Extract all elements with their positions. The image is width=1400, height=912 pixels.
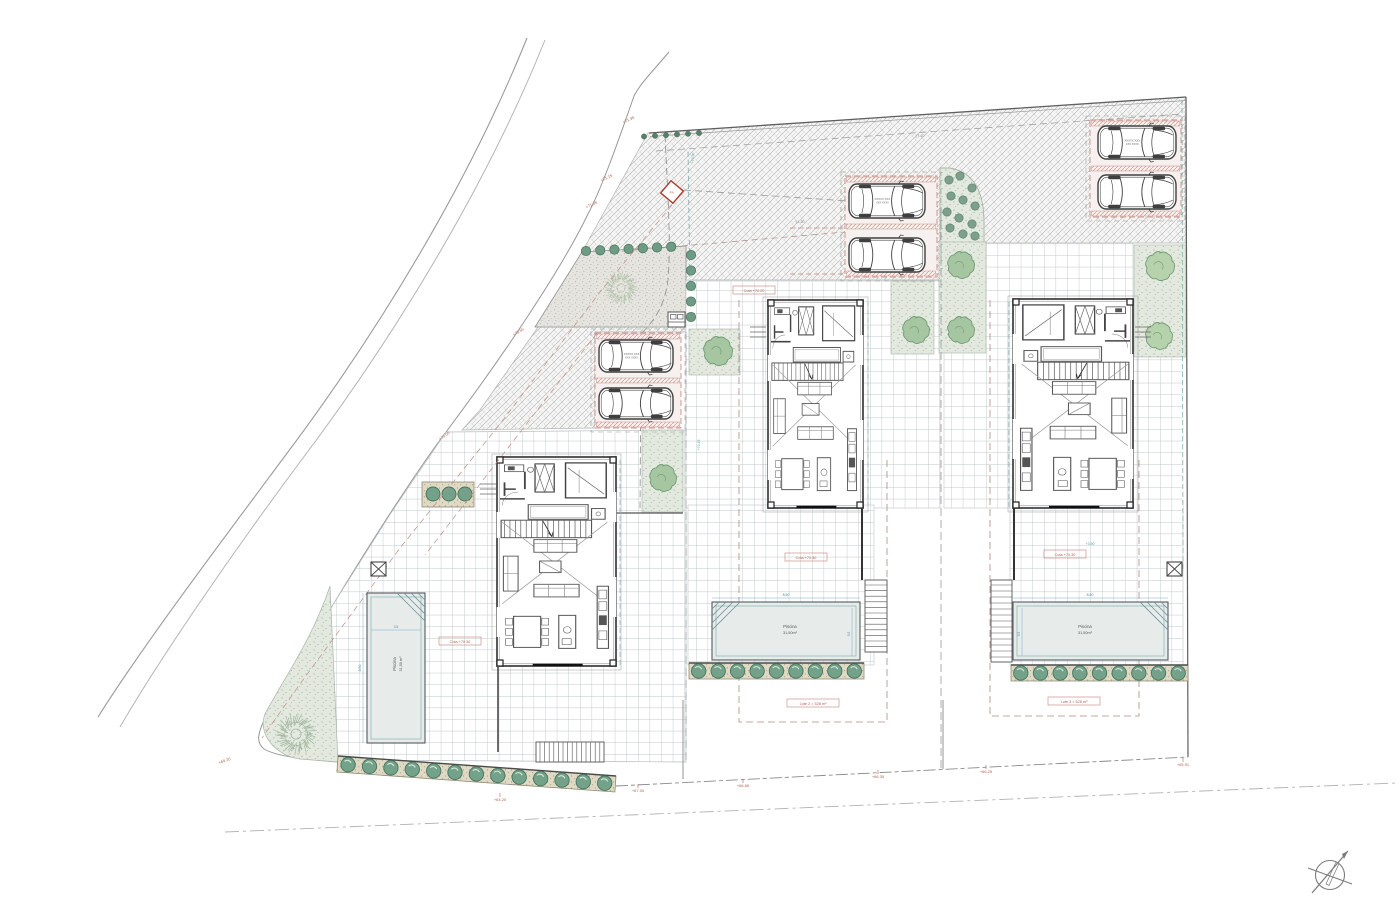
svg-text:8.50: 8.50 xyxy=(1087,593,1094,597)
svg-text:24.30: 24.30 xyxy=(795,220,804,225)
svg-text:XXX XXXX: XXX XXXX xyxy=(625,355,638,359)
svg-text:XXXXX XXX: XXXXX XXX xyxy=(1124,139,1140,143)
svg-text:3.5: 3.5 xyxy=(394,625,399,629)
svg-text:XXXXX XXX: XXXXX XXX xyxy=(875,197,891,201)
svg-text:Cota +70.30: Cota +70.30 xyxy=(1055,553,1076,557)
svg-text:3.5: 3.5 xyxy=(1017,632,1021,637)
svg-text:8.50: 8.50 xyxy=(358,665,362,672)
svg-text:+67.00: +67.00 xyxy=(632,788,645,793)
svg-text:+66.35: +66.35 xyxy=(872,774,885,779)
svg-text:3.5: 3.5 xyxy=(847,632,851,637)
svg-text:Cota +70.30: Cota +70.30 xyxy=(450,640,471,644)
svg-text:+70.45: +70.45 xyxy=(697,440,701,451)
svg-text:31,50 m²: 31,50 m² xyxy=(399,656,403,672)
svg-text:P.A.: P.A. xyxy=(670,191,675,195)
svg-text:Lote 2 = 528 m²: Lote 2 = 528 m² xyxy=(800,702,827,706)
svg-text:XXX XXXX: XXX XXXX xyxy=(1126,142,1139,146)
svg-text:Piscina: Piscina xyxy=(1078,624,1092,629)
svg-text:XXX XXXX: XXX XXXX xyxy=(876,200,889,204)
svg-text:Cota +70.20: Cota +70.20 xyxy=(744,289,765,293)
svg-text:Piscina: Piscina xyxy=(783,624,797,629)
svg-text:+64.20: +64.20 xyxy=(494,797,507,802)
svg-text:31,50m²: 31,50m² xyxy=(783,631,798,635)
svg-text:Lote 3 = 528 m²: Lote 3 = 528 m² xyxy=(1061,700,1088,704)
svg-text:Cota +70.30: Cota +70.30 xyxy=(796,556,817,560)
svg-text:8.50: 8.50 xyxy=(783,593,790,597)
svg-text:+3.50: +3.50 xyxy=(1086,542,1095,546)
svg-text:+66.25: +66.25 xyxy=(980,769,993,774)
svg-text:+65.91: +65.91 xyxy=(1177,762,1190,767)
svg-text:+66.65: +66.65 xyxy=(737,783,750,788)
svg-text:31,50m²: 31,50m² xyxy=(1078,631,1093,635)
svg-text:27.10: 27.10 xyxy=(915,134,924,139)
svg-text:Piscina: Piscina xyxy=(392,657,397,671)
svg-text:XXXXX XXX: XXXXX XXX xyxy=(624,352,640,356)
